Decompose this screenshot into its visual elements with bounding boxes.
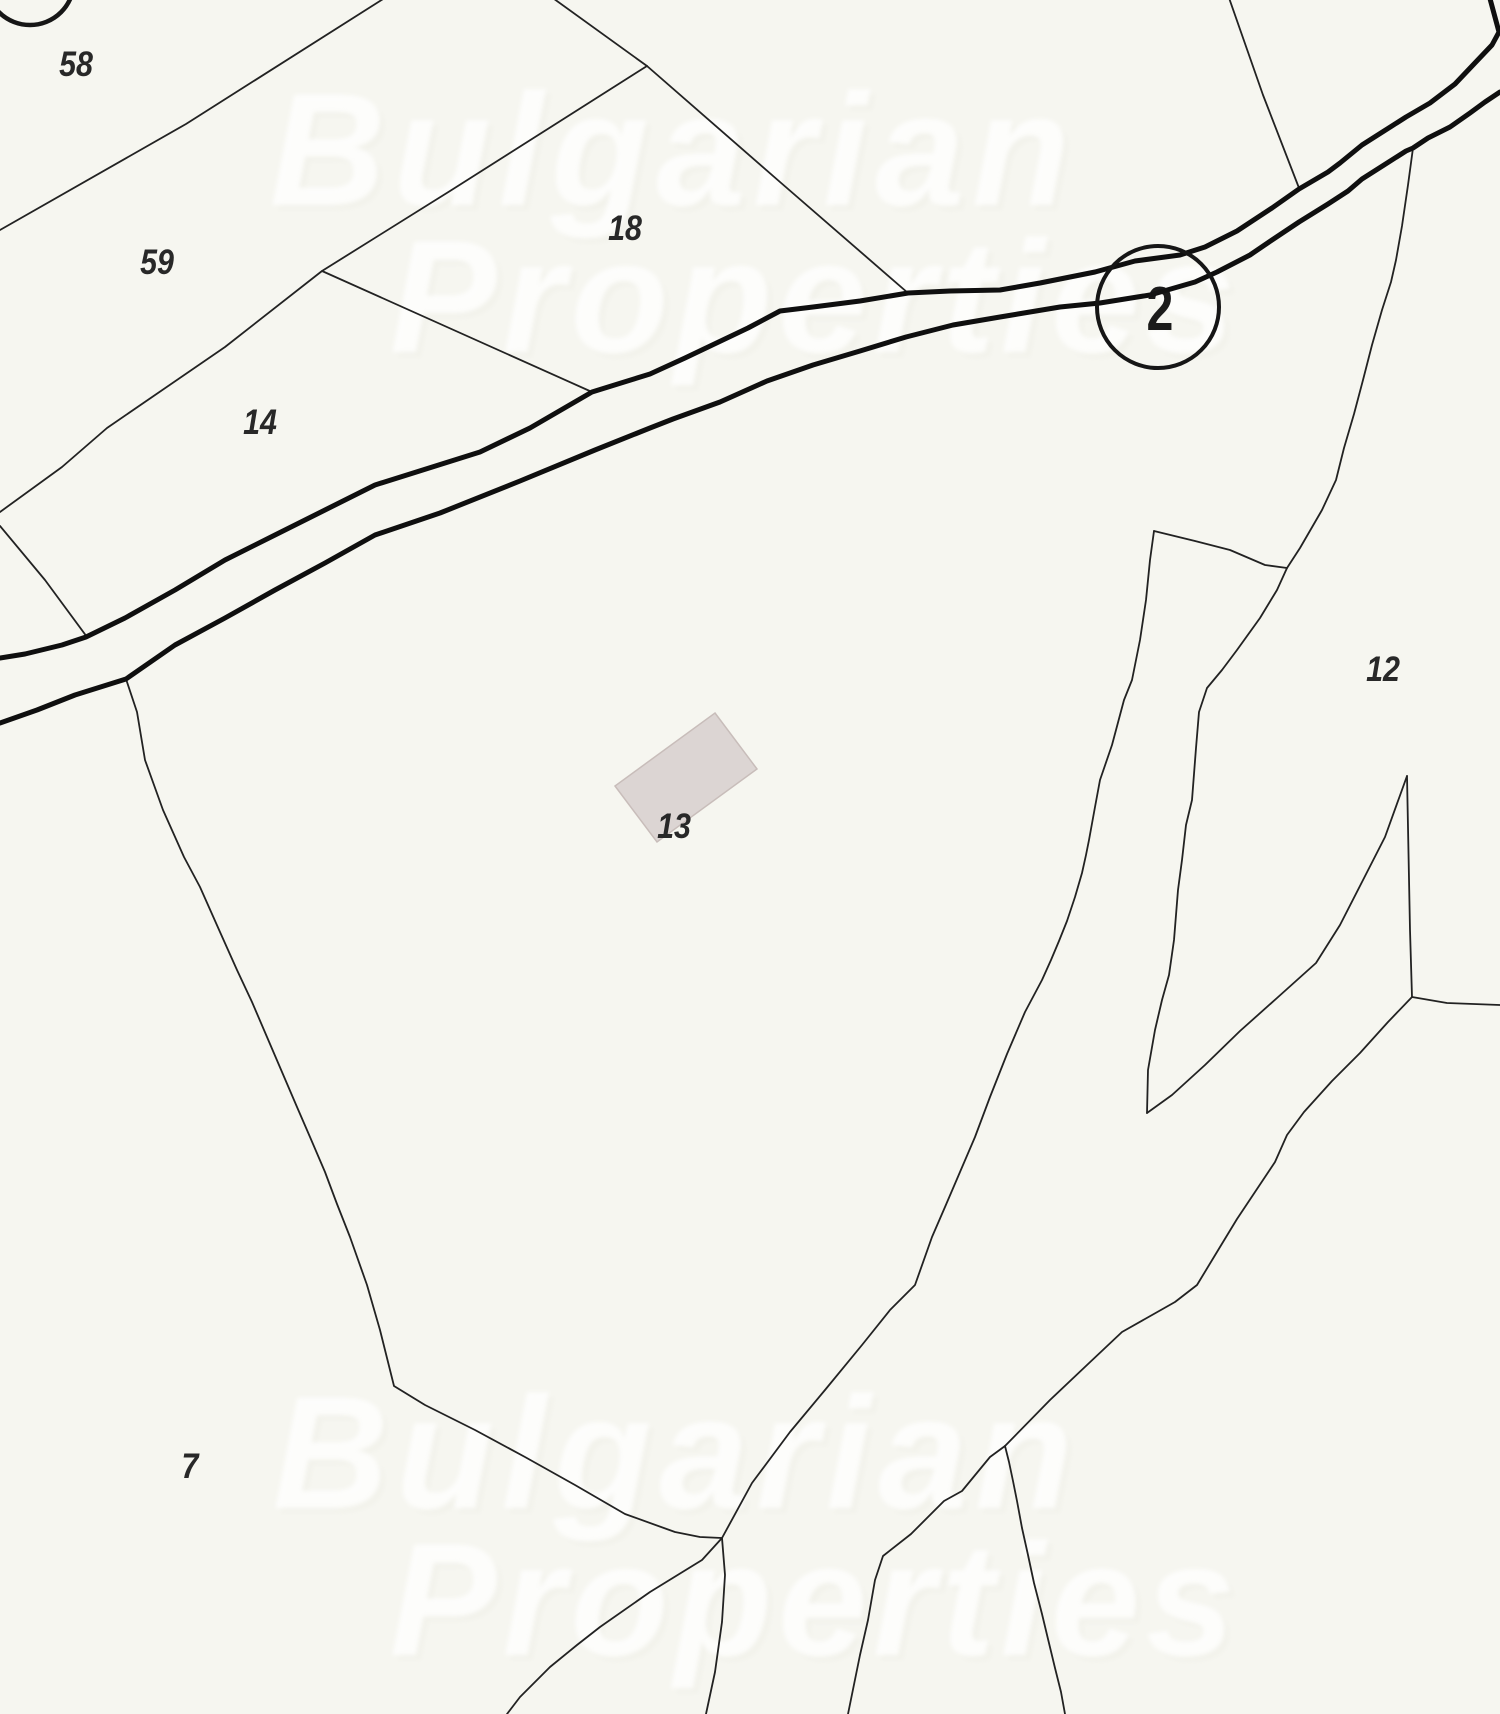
- svg-text:13: 13: [657, 806, 691, 845]
- svg-text:Properties: Properties: [390, 1510, 1235, 1689]
- svg-text:14: 14: [243, 402, 277, 441]
- svg-text:12: 12: [1366, 649, 1400, 688]
- svg-text:58: 58: [59, 44, 94, 83]
- svg-text:7: 7: [182, 1446, 201, 1485]
- svg-text:2: 2: [1147, 274, 1174, 343]
- svg-text:59: 59: [140, 242, 175, 281]
- svg-text:18: 18: [608, 208, 643, 247]
